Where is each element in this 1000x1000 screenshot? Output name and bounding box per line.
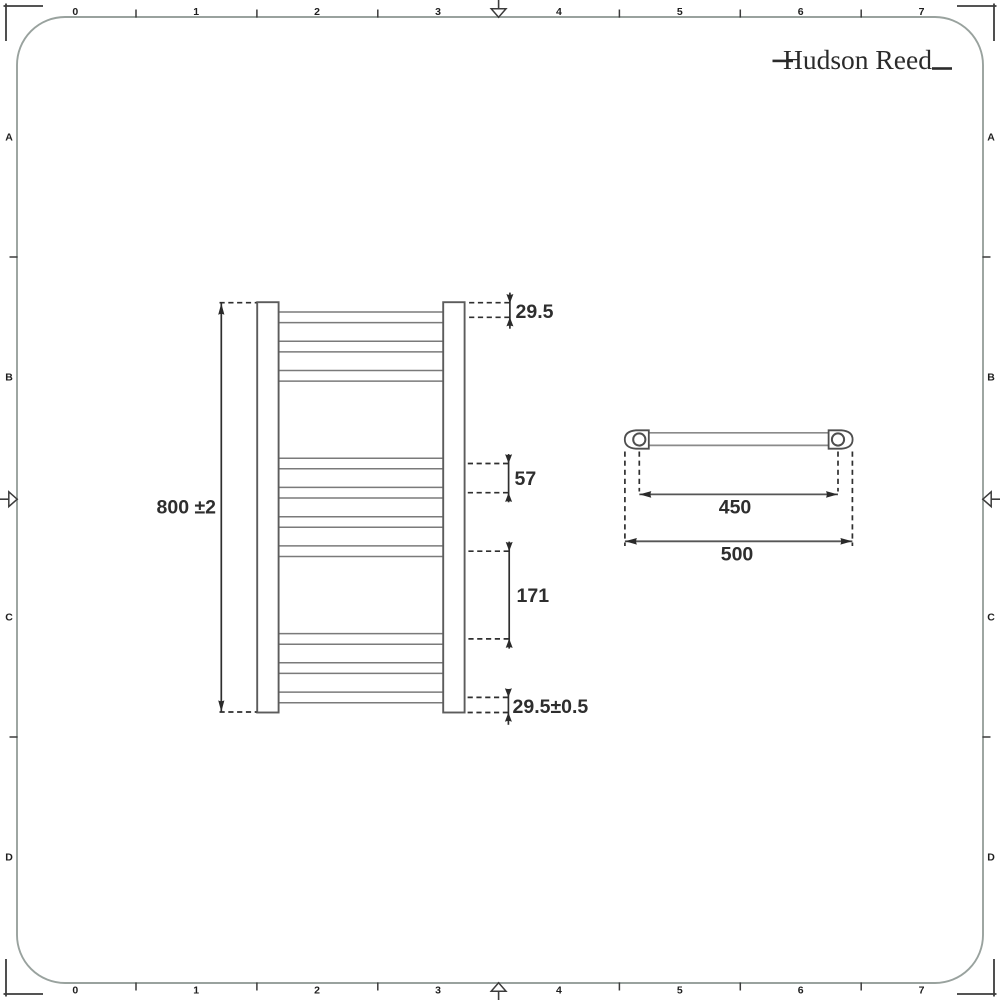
svg-text:D: D (987, 852, 995, 864)
svg-text:171: 171 (517, 585, 550, 607)
svg-text:4: 4 (556, 6, 562, 18)
svg-text:1: 1 (193, 985, 199, 997)
svg-text:0: 0 (72, 6, 78, 18)
svg-text:4: 4 (556, 985, 562, 997)
svg-text:7: 7 (919, 985, 925, 997)
svg-text:2: 2 (314, 6, 320, 18)
svg-text:1: 1 (193, 6, 199, 18)
svg-text:450: 450 (719, 497, 752, 519)
svg-text:6: 6 (798, 985, 804, 997)
svg-text:A: A (5, 132, 13, 144)
svg-text:C: C (5, 612, 13, 624)
svg-text:5: 5 (677, 985, 683, 997)
svg-text:57: 57 (515, 468, 537, 490)
svg-text:6: 6 (798, 6, 804, 18)
svg-text:5: 5 (677, 6, 683, 18)
svg-text:7: 7 (919, 6, 925, 18)
svg-text:3: 3 (435, 985, 441, 997)
svg-text:Hudson Reed: Hudson Reed (783, 44, 932, 75)
svg-text:D: D (5, 852, 13, 864)
svg-text:3: 3 (435, 6, 441, 18)
svg-text:800 ±2: 800 ±2 (157, 497, 217, 519)
svg-text:0: 0 (72, 985, 78, 997)
svg-text:29.5: 29.5 (516, 301, 554, 323)
svg-text:B: B (987, 372, 995, 384)
svg-text:2: 2 (314, 985, 320, 997)
svg-text:29.5±0.5: 29.5±0.5 (513, 696, 589, 718)
svg-text:500: 500 (721, 544, 754, 566)
svg-text:C: C (987, 612, 995, 624)
svg-text:B: B (5, 372, 13, 384)
svg-text:A: A (987, 132, 995, 144)
